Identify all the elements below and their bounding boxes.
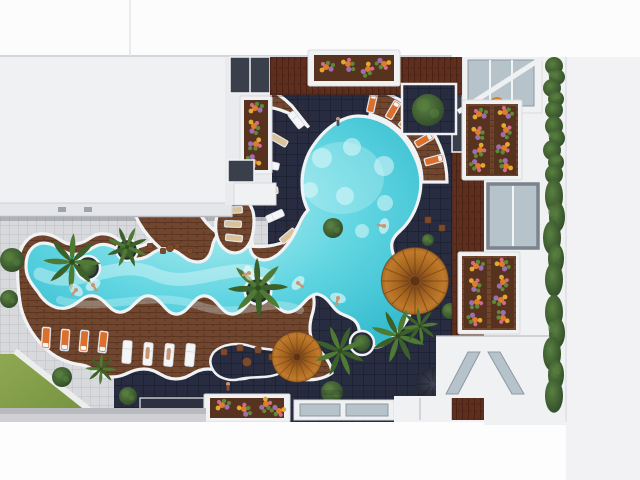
round-bush bbox=[422, 234, 434, 246]
sun-lounger bbox=[224, 220, 242, 228]
skylight-window bbox=[488, 184, 538, 248]
thatch-parasol-medium bbox=[272, 332, 322, 382]
person-standing bbox=[336, 117, 340, 126]
round-bush bbox=[0, 290, 18, 308]
bush-planter-top bbox=[402, 84, 456, 134]
flower-planter-bottom bbox=[204, 394, 290, 422]
aerial-courtyard-render bbox=[0, 0, 640, 480]
perimeter-wall-top bbox=[0, 414, 206, 422]
round-bush bbox=[52, 367, 72, 387]
skylight-strip bbox=[294, 400, 394, 420]
round-bush bbox=[323, 218, 343, 238]
person-on-lounger bbox=[145, 347, 150, 359]
render-stage bbox=[0, 0, 640, 480]
roof-vent bbox=[58, 207, 66, 212]
roof-vent bbox=[84, 207, 92, 212]
thatch-parasol-large bbox=[381, 247, 448, 314]
round-bush-large bbox=[412, 94, 444, 126]
round-bush bbox=[119, 387, 137, 405]
balcony-box bbox=[234, 183, 276, 205]
left-building-facade bbox=[225, 57, 276, 205]
round-bush bbox=[0, 248, 24, 272]
flower-planter-top bbox=[308, 50, 400, 86]
bottom-margin bbox=[0, 422, 640, 480]
top-edge bbox=[0, 0, 640, 57]
right-facade bbox=[436, 0, 640, 480]
flower-balcony-upper bbox=[462, 100, 522, 180]
flower-balcony-lower bbox=[458, 252, 520, 334]
right-roof bbox=[566, 0, 640, 480]
left-building-roof bbox=[0, 57, 232, 217]
window bbox=[228, 160, 254, 182]
person-walking bbox=[226, 382, 230, 391]
